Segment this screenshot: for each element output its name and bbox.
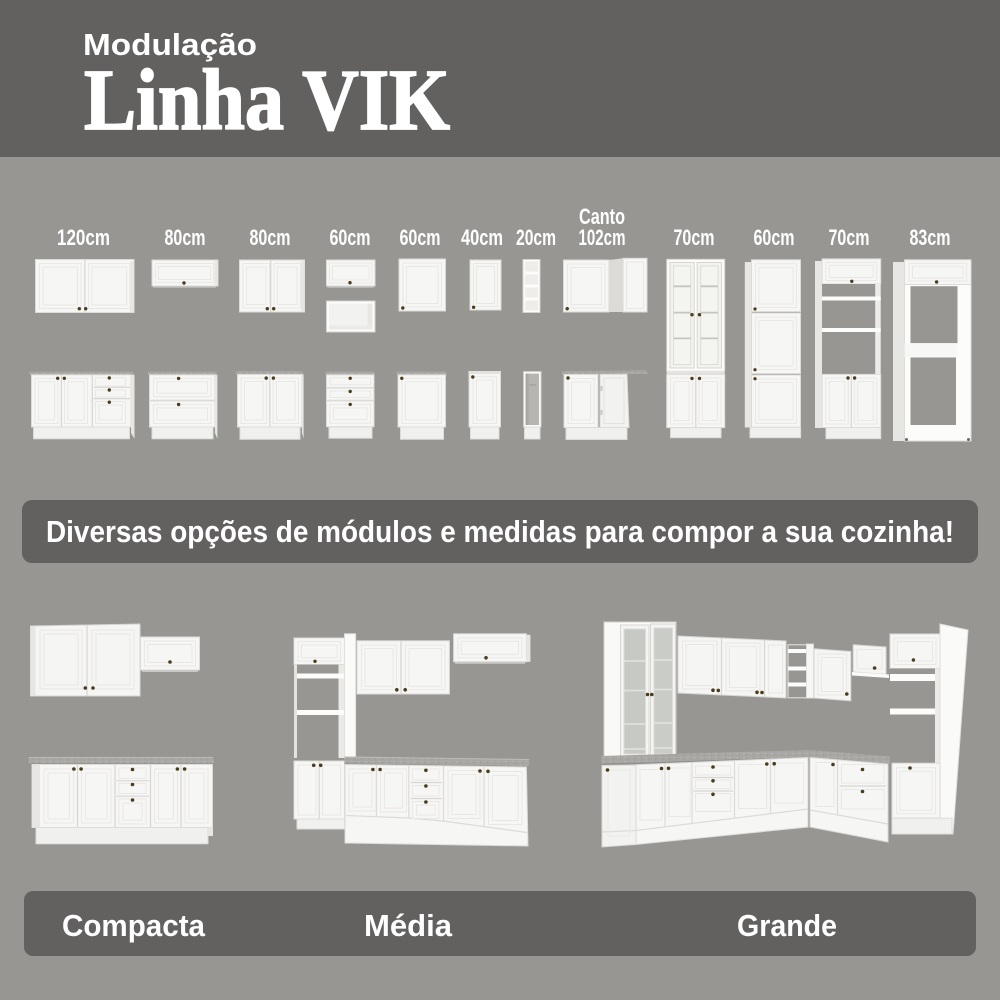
svg-text:70cm: 70cm <box>674 225 715 250</box>
svg-text:102cm: 102cm <box>579 225 626 250</box>
svg-text:70cm: 70cm <box>829 225 870 250</box>
svg-text:40cm: 40cm <box>461 225 503 250</box>
svg-text:80cm: 80cm <box>165 225 206 250</box>
svg-text:Diversas opções de módulos e m: Diversas opções de módulos e medidas par… <box>46 514 954 549</box>
svg-text:Média: Média <box>364 908 453 943</box>
svg-text:20cm: 20cm <box>516 225 556 250</box>
svg-text:80cm: 80cm <box>250 225 291 250</box>
svg-text:Compacta: Compacta <box>62 908 206 943</box>
svg-text:60cm: 60cm <box>330 225 371 250</box>
svg-text:60cm: 60cm <box>400 225 441 250</box>
svg-text:Linha VIK: Linha VIK <box>84 51 450 148</box>
svg-text:Grande: Grande <box>737 908 837 943</box>
svg-text:120cm: 120cm <box>57 225 110 250</box>
svg-text:60cm: 60cm <box>754 225 795 250</box>
svg-text:83cm: 83cm <box>910 225 951 250</box>
